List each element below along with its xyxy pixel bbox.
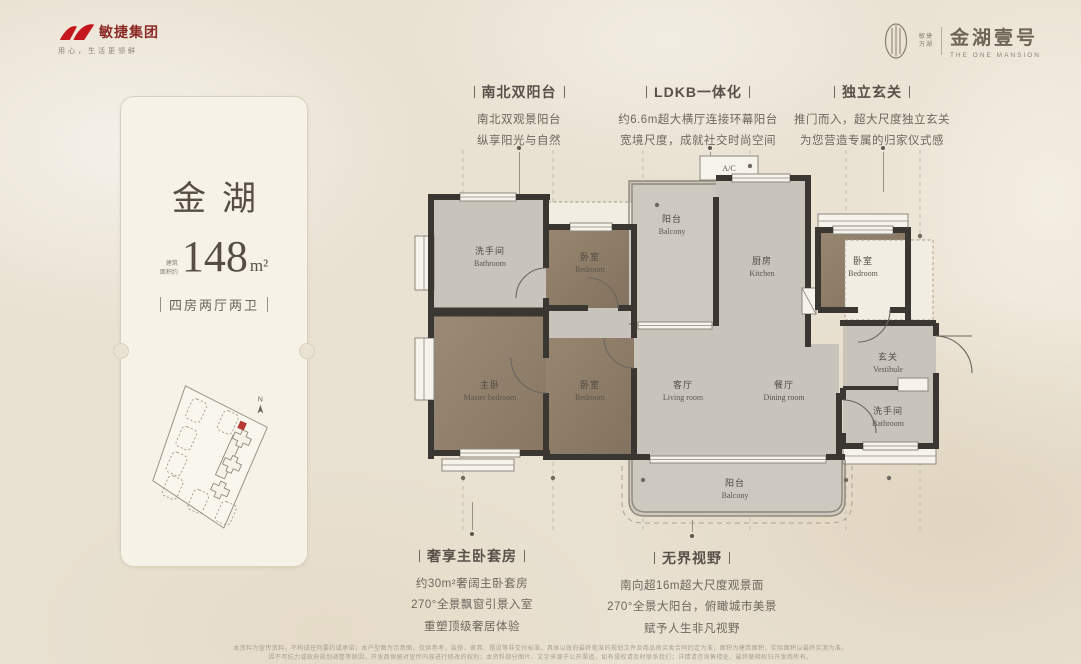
layout-spec: 四房两厅两卫 bbox=[121, 295, 307, 314]
callout-dual-balcony: 南北双阳台 南北双观景阳台 纵享阳光与自然 bbox=[429, 82, 609, 153]
project-name: 金湖壹号 bbox=[950, 23, 1041, 50]
callout-title: 奢享主卧套房 bbox=[427, 546, 517, 566]
callout-line: 重塑顶级奢居体验 bbox=[387, 617, 557, 638]
unit-title: 金湖 bbox=[121, 171, 307, 220]
poster-page: 敏捷集团 用心，生活更领鲜 敏捷 万湖 金湖壹号 THE ONE MANSION… bbox=[0, 0, 1081, 664]
callout-line: 南向超16m超大尺度观景面 bbox=[602, 576, 782, 597]
brand-logo: 敏捷集团 用心，生活更领鲜 bbox=[58, 20, 208, 56]
callout-line: 270°全景大阳台，俯瞰城市美景 bbox=[602, 597, 782, 618]
area-prefix: 建筑 面积约 bbox=[160, 260, 178, 278]
title-bar bbox=[474, 86, 475, 98]
compass-label: N bbox=[258, 397, 263, 404]
brand-tagline: 用心，生活更领鲜 bbox=[58, 46, 208, 56]
svg-text:厨房: 厨房 bbox=[752, 255, 772, 266]
card-notch-left bbox=[113, 343, 129, 359]
callout-line: 赋予人生非凡视野 bbox=[602, 619, 782, 640]
layout-bar-right bbox=[267, 297, 268, 312]
svg-text:客厅: 客厅 bbox=[673, 379, 693, 390]
svg-text:Bedroom: Bedroom bbox=[848, 269, 879, 278]
area-unit: m² bbox=[250, 256, 268, 276]
svg-text:Living room: Living room bbox=[663, 393, 704, 402]
callout-title: 无界视野 bbox=[662, 548, 722, 568]
svg-text:Balcony: Balcony bbox=[722, 491, 749, 500]
site-plan: N bbox=[141, 369, 289, 537]
callout-line: 约30m²奢阔主卧套房 bbox=[387, 574, 557, 595]
svg-text:Bedroom: Bedroom bbox=[575, 393, 606, 402]
svg-text:阳台: 阳台 bbox=[725, 477, 745, 488]
callout-line: 约6.6m超大横厅连接环幕阳台 bbox=[598, 110, 798, 131]
title-bar bbox=[524, 550, 525, 562]
svg-text:洗手间: 洗手间 bbox=[475, 245, 505, 256]
callout-vestibule: 独立玄关 推门而入，超大尺度独立玄关 为您营造专属的归家仪式感 bbox=[782, 82, 962, 153]
area-prefix-line1: 建筑 bbox=[160, 260, 178, 269]
title-bar bbox=[749, 86, 750, 98]
layout-text: 四房两厅两卫 bbox=[169, 295, 259, 314]
svg-text:Balcony: Balcony bbox=[659, 227, 686, 236]
title-bar bbox=[909, 86, 910, 98]
title-bar bbox=[654, 552, 655, 564]
disclaimer-line-2: 因不可抗力或政府规划调整等原因，开发商保留对宣传内容进行修改的权利；本资料部分图… bbox=[35, 652, 1046, 661]
svg-text:玄关: 玄关 bbox=[878, 351, 898, 362]
title-bar bbox=[834, 86, 835, 98]
svg-text:洗手间: 洗手间 bbox=[873, 405, 903, 416]
project-name-en: THE ONE MANSION bbox=[950, 52, 1041, 59]
area-value: 148 bbox=[182, 235, 248, 279]
spec-card: 金湖 建筑 面积约 148 m² 四房两厅两卫 bbox=[120, 96, 308, 567]
callout-title: 南北双阳台 bbox=[482, 82, 557, 102]
brand-name: 敏捷集团 bbox=[99, 22, 159, 42]
svg-text:卧室: 卧室 bbox=[580, 251, 600, 262]
callout-title: LDKB一体化 bbox=[654, 82, 742, 102]
svg-text:卧室: 卧室 bbox=[853, 255, 873, 266]
svg-text:Kitchen: Kitchen bbox=[749, 269, 774, 278]
svg-text:Bedroom: Bedroom bbox=[575, 265, 606, 274]
svg-text:卧室: 卧室 bbox=[580, 379, 600, 390]
connector-dot bbox=[690, 534, 694, 538]
svg-text:餐厅: 餐厅 bbox=[774, 379, 794, 390]
callout-ldkb: LDKB一体化 约6.6m超大横厅连接环幕阳台 宽境尺度，成就社交时尚空间 bbox=[598, 82, 798, 153]
project-developer-small: 敏捷 万湖 bbox=[919, 33, 933, 50]
title-bar bbox=[419, 550, 420, 562]
svg-text:主卧: 主卧 bbox=[480, 379, 500, 390]
layout-bar-left bbox=[160, 297, 161, 312]
svg-text:Master bedroom: Master bedroom bbox=[464, 393, 517, 402]
compass-icon: N bbox=[257, 397, 263, 414]
area-prefix-line2: 面积约 bbox=[160, 269, 178, 278]
logo-divider bbox=[941, 27, 942, 55]
ac-label: A/C bbox=[722, 164, 735, 173]
project-emblem-icon bbox=[881, 20, 911, 62]
project-logo: 敏捷 万湖 金湖壹号 THE ONE MANSION bbox=[881, 20, 1041, 62]
svg-text:Vestibule: Vestibule bbox=[873, 365, 903, 374]
callout-title: 独立玄关 bbox=[842, 82, 902, 102]
title-bar bbox=[646, 86, 647, 98]
floor-plan: A/C 洗手间 Bathroom 卧室 Bedroom 阳台 Balcony 厨… bbox=[398, 148, 973, 533]
brand-swoosh-icon bbox=[58, 20, 96, 42]
svg-text:Dining room: Dining room bbox=[763, 393, 805, 402]
project-small-line2: 万湖 bbox=[919, 41, 933, 49]
callout-line: 270°全景飘窗引景入室 bbox=[387, 595, 557, 616]
callout-master-suite: 奢享主卧套房 约30m²奢阔主卧套房 270°全景飘窗引景入室 重塑顶级奢居体验 bbox=[387, 546, 557, 638]
svg-text:Bathroom: Bathroom bbox=[474, 259, 507, 268]
callout-view: 无界视野 南向超16m超大尺度观景面 270°全景大阳台，俯瞰城市美景 赋予人生… bbox=[602, 548, 782, 640]
project-small-line1: 敏捷 bbox=[919, 33, 933, 41]
svg-text:Bathroom: Bathroom bbox=[872, 419, 905, 428]
callout-line: 南北双观景阳台 bbox=[429, 110, 609, 131]
disclaimer-line-1: 本资料为宣传资料，不构成任何要约或承诺；本户型图为示意图，仅供参考，装修、家具、… bbox=[35, 643, 1046, 652]
title-bar bbox=[564, 86, 565, 98]
svg-text:阳台: 阳台 bbox=[662, 213, 682, 224]
title-bar bbox=[729, 552, 730, 564]
card-notch-right bbox=[299, 343, 315, 359]
callout-line: 推门而入，超大尺度独立玄关 bbox=[782, 110, 962, 131]
